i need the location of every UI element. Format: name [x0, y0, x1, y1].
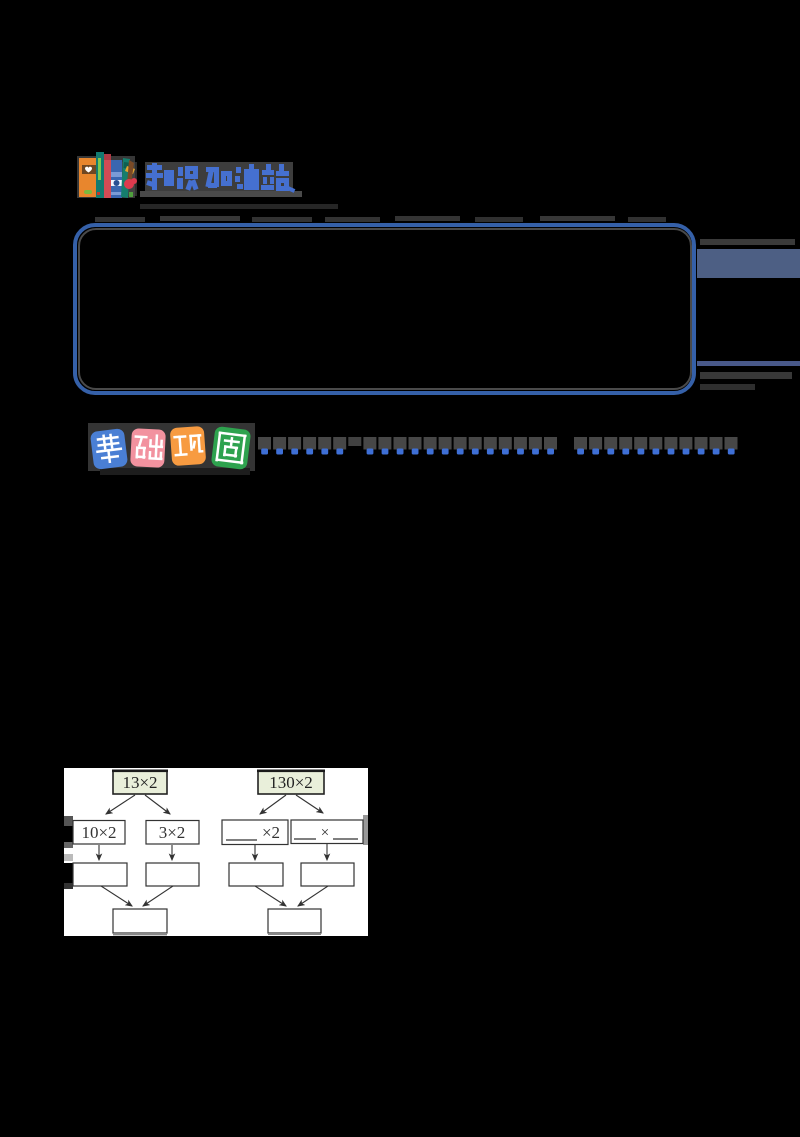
svg-text:×2: ×2 [262, 823, 280, 842]
svg-text:3×2: 3×2 [159, 823, 186, 842]
svg-text:130×2: 130×2 [269, 773, 313, 792]
svg-text:×: × [321, 825, 329, 841]
svg-text:10×2: 10×2 [81, 823, 116, 842]
svg-text:13×2: 13×2 [122, 773, 157, 792]
